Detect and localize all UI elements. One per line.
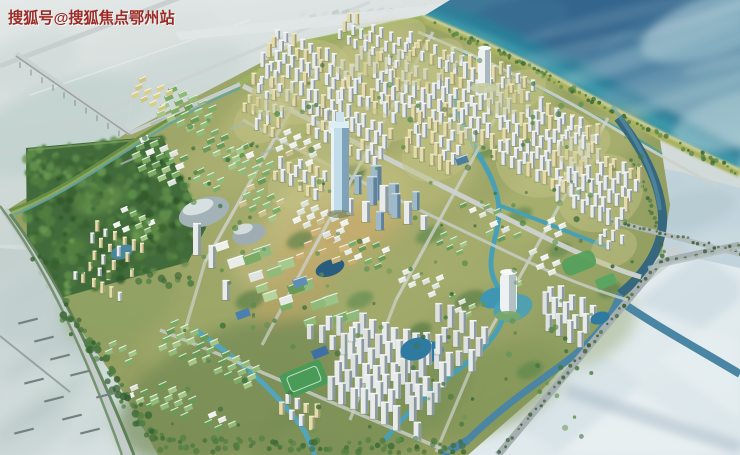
svg-text:搜狐号@搜狐焦点鄂州站: 搜狐号@搜狐焦点鄂州站 <box>8 9 175 27</box>
